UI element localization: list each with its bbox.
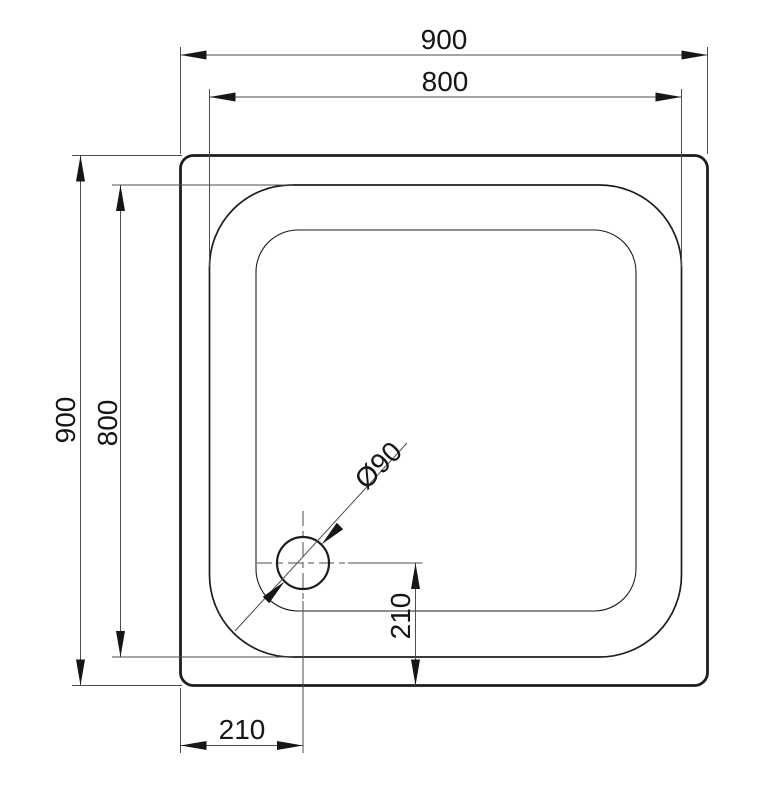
- arrowhead-up: [76, 156, 85, 182]
- arrowhead-right: [277, 741, 303, 750]
- arrowhead-left: [210, 93, 236, 102]
- arrowhead-up: [411, 563, 420, 589]
- dimension-label: 900: [421, 24, 468, 55]
- dimension-label: 210: [219, 714, 266, 745]
- arrowhead-lower: [263, 582, 285, 604]
- dimension-bottom-offset: 210: [181, 688, 304, 753]
- arrowhead-down: [116, 631, 125, 657]
- dimension-label: Ø90: [349, 436, 408, 495]
- arrowhead-right: [682, 51, 708, 60]
- dimension-label: 210: [385, 593, 416, 640]
- shower-tray-plan-drawing: 900 800 900 800: [0, 0, 769, 805]
- tray-outline: [181, 156, 708, 686]
- tray-outer-edge: [181, 156, 708, 686]
- drain: [257, 511, 350, 753]
- dimension-left-inner: 800: [92, 185, 293, 657]
- dimension-label: 800: [422, 66, 469, 97]
- arrowhead-down: [411, 660, 420, 686]
- dimension-label: 900: [50, 397, 81, 444]
- arrowhead-down: [76, 660, 85, 686]
- dimension-label: 800: [92, 400, 123, 447]
- arrowhead-up: [116, 185, 125, 211]
- technical-drawing-canvas: 900 800 900 800: [0, 0, 769, 805]
- arrowhead-left: [181, 51, 207, 60]
- tray-floor-edge: [256, 230, 636, 611]
- arrowhead-right: [656, 93, 682, 102]
- arrowhead-upper: [322, 523, 344, 545]
- dimension-top-inner: 800: [210, 66, 682, 267]
- arrowhead-left: [181, 741, 207, 750]
- dimension-drain-diameter: Ø90: [235, 436, 408, 631]
- dimension-right-offset: 210: [348, 563, 423, 686]
